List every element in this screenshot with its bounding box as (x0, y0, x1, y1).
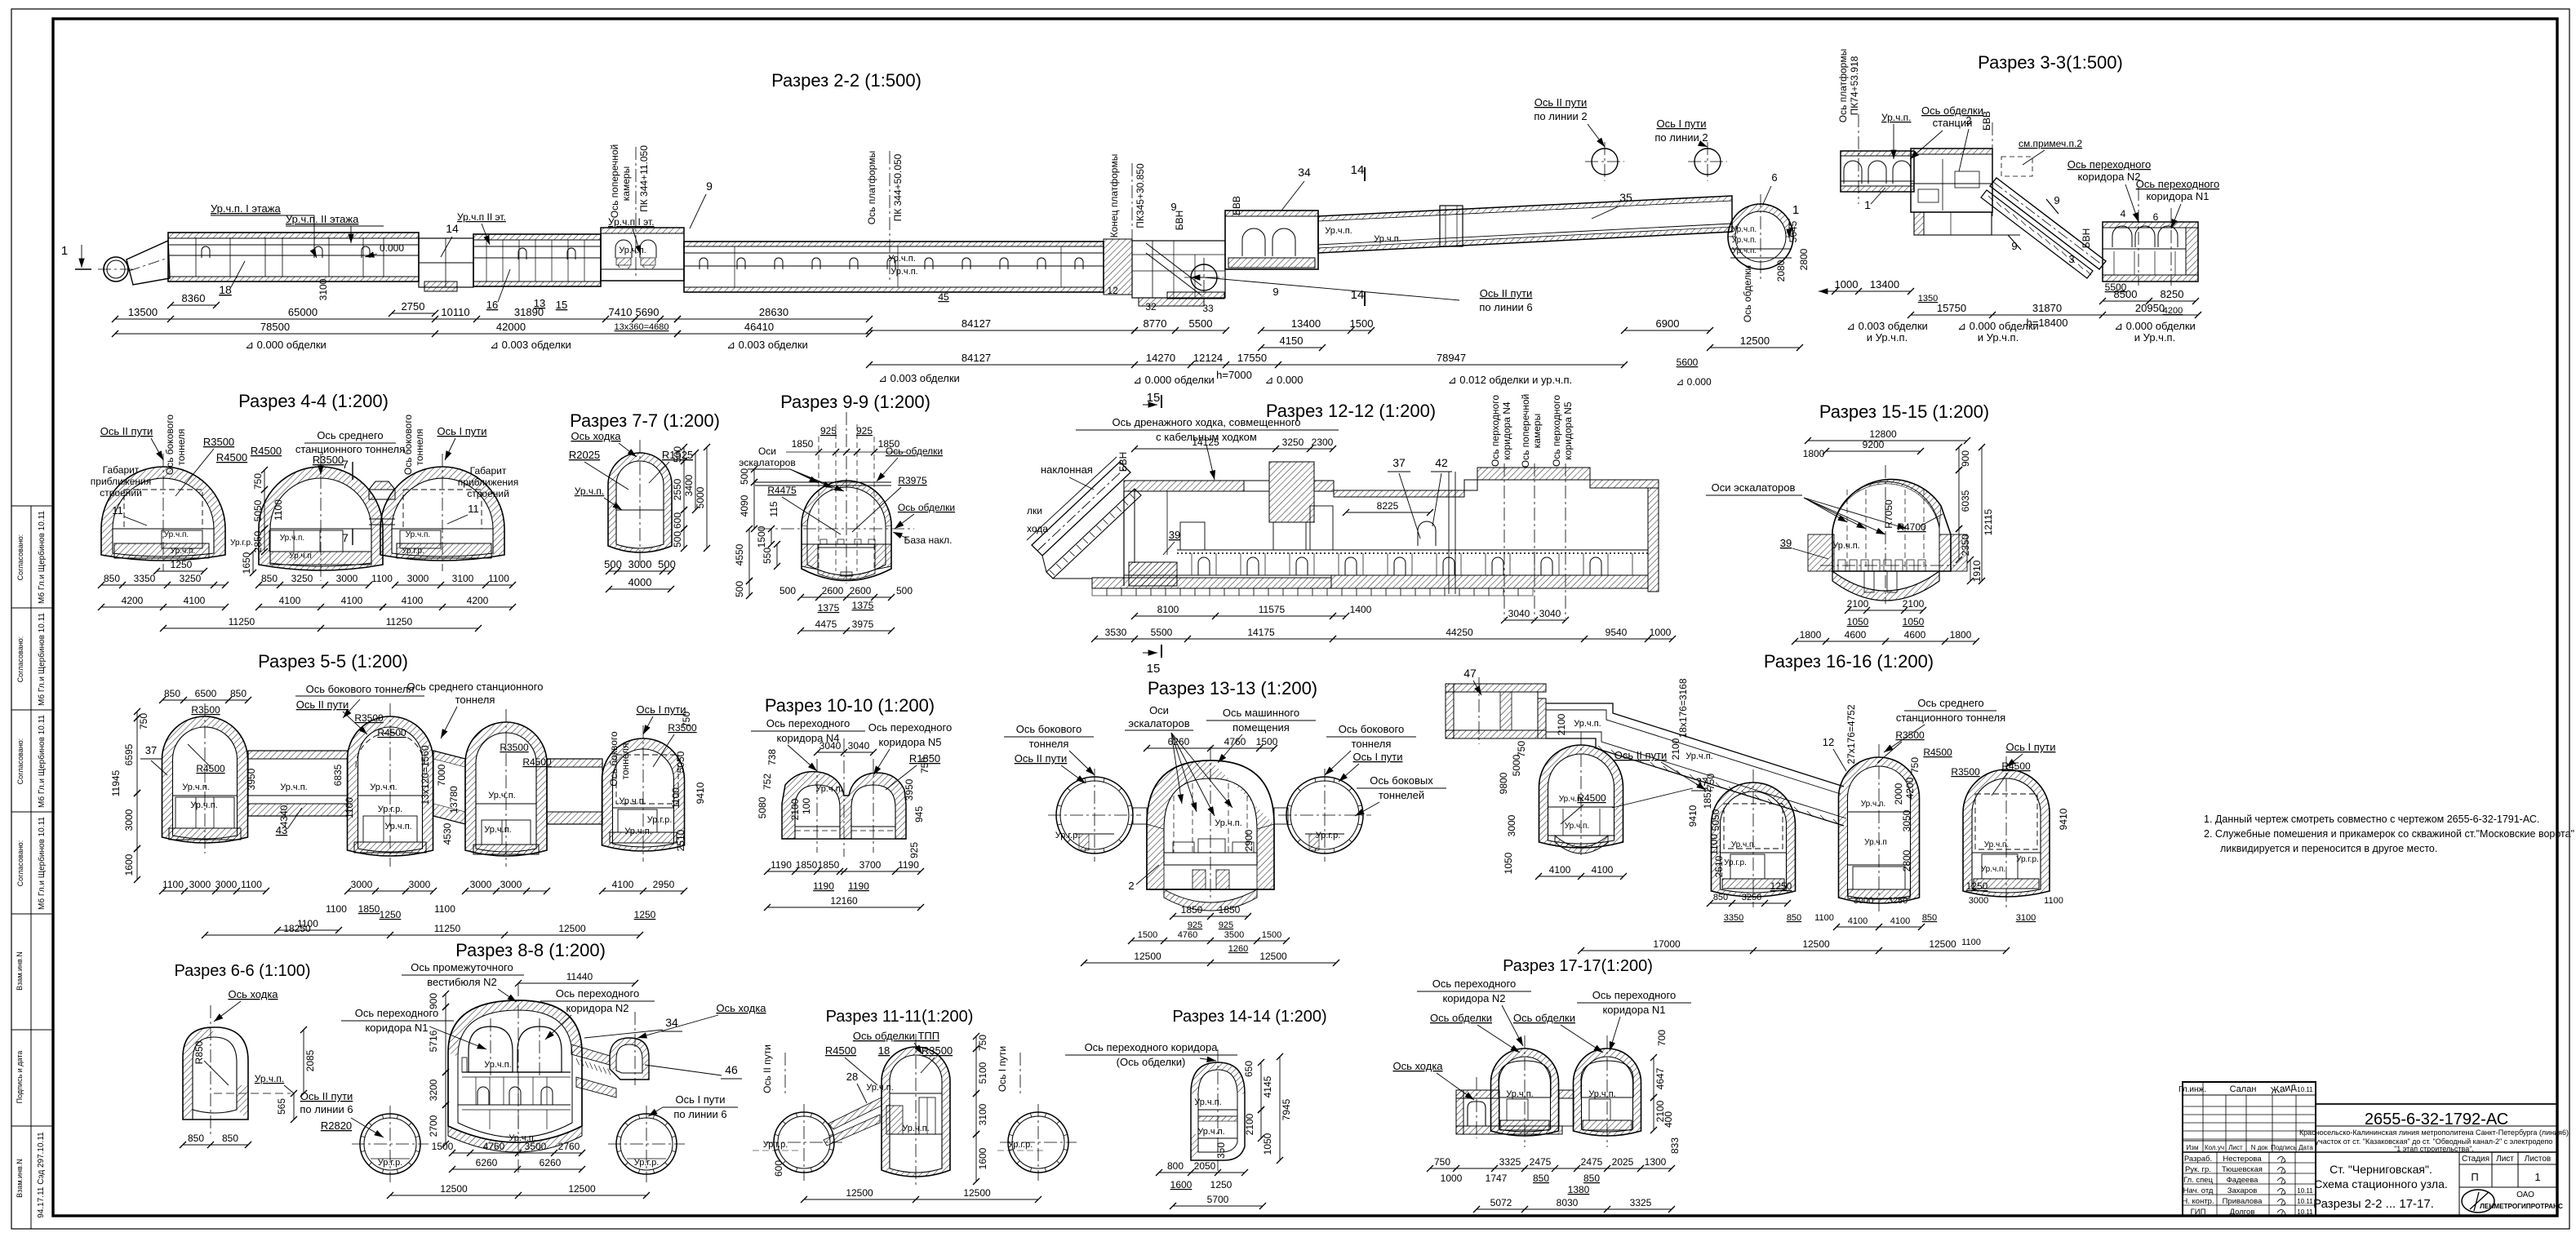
svg-text:11575: 11575 (1259, 604, 1286, 615)
svg-text:27x176=4752: 27x176=4752 (1845, 704, 1857, 764)
svg-text:камеры: камеры (1531, 414, 1543, 448)
svg-text:900: 900 (428, 993, 439, 1009)
svg-text:4600: 4600 (1904, 629, 1926, 641)
svg-text:Ур.г.р.: Ур.г.р. (647, 815, 673, 825)
svg-text:3: 3 (2068, 253, 2074, 265)
svg-text:Ур.ч.п.: Ур.ч.п. (190, 800, 217, 810)
svg-text:3040: 3040 (1508, 608, 1530, 619)
svg-text:925: 925 (908, 842, 920, 858)
svg-text:12500: 12500 (963, 1187, 991, 1199)
svg-text:1050: 1050 (1847, 616, 1869, 627)
svg-text:500: 500 (739, 468, 750, 485)
svg-text:3000: 3000 (1506, 814, 1517, 836)
svg-text:37: 37 (145, 744, 157, 756)
svg-text:Ур.ч.п.: Ур.ч.п. (624, 827, 651, 836)
svg-text:1800: 1800 (1950, 629, 1972, 641)
svg-text:3000: 3000 (1854, 896, 1873, 906)
svg-text:R4500: R4500 (196, 763, 225, 774)
svg-text:6595: 6595 (123, 743, 135, 765)
svg-text:17550: 17550 (1237, 352, 1267, 364)
svg-text:4760: 4760 (1178, 930, 1197, 940)
svg-text:2550: 2550 (672, 478, 683, 500)
svg-text:Ур.ч.п.: Ур.ч.п. (1861, 800, 1885, 809)
svg-text:2: 2 (1128, 880, 1134, 892)
svg-text:4200: 4200 (2163, 306, 2183, 316)
svg-text:18: 18 (219, 283, 232, 296)
svg-text:1500: 1500 (756, 525, 767, 548)
svg-text:1800: 1800 (1800, 629, 1822, 641)
svg-text:3530: 3530 (1105, 627, 1127, 638)
svg-text:12160: 12160 (830, 895, 858, 907)
svg-text:750: 750 (1434, 1156, 1450, 1168)
svg-text:6035: 6035 (1960, 490, 1971, 512)
svg-text:1910: 1910 (1971, 560, 1983, 582)
svg-text:коридора N2: коридора N2 (2077, 171, 2140, 183)
svg-text:600: 600 (773, 1160, 784, 1177)
svg-text:1850: 1850 (818, 859, 840, 871)
svg-text:1500: 1500 (1262, 930, 1281, 940)
svg-text:10110: 10110 (441, 306, 469, 318)
svg-text:35: 35 (1619, 191, 1632, 204)
svg-text:2300: 2300 (1312, 437, 1334, 448)
svg-text:1600: 1600 (977, 1147, 988, 1169)
svg-text:R3500: R3500 (1895, 729, 1925, 741)
svg-text:⊿ 0.000 обделки: ⊿ 0.000 обделки (245, 339, 326, 351)
svg-text:Ось переходного: Ось переходного (1432, 978, 1516, 990)
svg-text:ПК345+30.850: ПК345+30.850 (1135, 163, 1146, 228)
svg-text:Разрез 4-4 (1:200): Разрез 4-4 (1:200) (238, 391, 389, 411)
svg-text:Разрезы 2-2 ... 17-17.: Разрезы 2-2 ... 17-17. (2313, 1197, 2434, 1211)
svg-text:4100: 4100 (1592, 864, 1614, 876)
svg-text:11440: 11440 (566, 971, 593, 982)
svg-text:500: 500 (672, 531, 683, 548)
svg-text:Ось перходного: Ось перходного (1551, 395, 1562, 467)
svg-text:4000: 4000 (628, 576, 652, 588)
svg-text:17000: 17000 (1653, 938, 1681, 950)
svg-text:4100: 4100 (1549, 864, 1571, 876)
svg-text:3000: 3000 (189, 879, 211, 890)
svg-text:Ур.ч.п II эт.: Ур.ч.п II эт. (457, 211, 506, 223)
svg-text:Ось I пути: Ось I пути (997, 1046, 1008, 1092)
svg-text:3975: 3975 (852, 618, 874, 630)
svg-text:1000: 1000 (1441, 1173, 1463, 1184)
svg-text:4100: 4100 (1848, 916, 1868, 926)
svg-text:500: 500 (672, 446, 683, 463)
svg-text:4: 4 (2121, 208, 2126, 219)
svg-text:БВН: БВН (1174, 211, 1185, 231)
svg-text:Ур.ч.п.: Ур.ч.п. (619, 246, 646, 255)
svg-text:БВВ: БВВ (1981, 111, 1992, 131)
svg-text:R4500: R4500 (377, 727, 406, 738)
svg-text:8770: 8770 (1144, 317, 1167, 330)
svg-text:1250: 1250 (1210, 1179, 1232, 1190)
svg-text:5716: 5716 (428, 1030, 439, 1052)
svg-text:2000: 2000 (1893, 783, 1904, 805)
svg-text:12500: 12500 (846, 1187, 873, 1199)
svg-text:по линии 6: по линии 6 (673, 1108, 726, 1120)
svg-text:Мб Гл.и Щербинов 10.11: Мб Гл.и Щербинов 10.11 (37, 511, 47, 604)
svg-text:Ур.ч.п.: Ур.ч.п. (1731, 840, 1756, 849)
svg-text:Ур.г.р.: Ур.г.р. (634, 1158, 660, 1168)
svg-text:2085: 2085 (304, 1049, 316, 1071)
svg-text:6500: 6500 (195, 688, 217, 699)
svg-text:850: 850 (1787, 913, 1801, 923)
svg-text:Ось I пути: Ось I пути (2006, 741, 2056, 753)
svg-text:Привалова: Привалова (2223, 1197, 2263, 1206)
svg-text:Ур.ч.п.: Ур.ч.п. (1325, 226, 1352, 236)
svg-text:13x360=4680: 13x360=4680 (615, 322, 669, 332)
svg-text:10.11: 10.11 (2297, 1187, 2313, 1195)
svg-text:8360: 8360 (182, 292, 206, 304)
svg-text:4090: 4090 (739, 494, 750, 517)
svg-text:Ось переходного: Ось переходного (1592, 989, 1676, 1001)
svg-text:Лист: Лист (2228, 1144, 2243, 1151)
svg-text:Ось обделки: Ось обделки (898, 502, 955, 513)
svg-text:R4500: R4500 (251, 445, 282, 457)
svg-text:37: 37 (1392, 456, 1406, 469)
svg-text:Ур.ч.п.: Ур.ч.п. (1832, 541, 1859, 551)
svg-text:R3500: R3500 (313, 454, 344, 466)
svg-text:1100: 1100 (670, 787, 682, 809)
svg-text:Разрез 7-7 (1:200): Разрез 7-7 (1:200) (570, 410, 720, 431)
svg-text:47: 47 (1463, 667, 1477, 680)
svg-text:5072: 5072 (1490, 1197, 1512, 1208)
svg-text:тоннеля: тоннеля (414, 428, 425, 465)
svg-text:Ось II пути: Ось II пути (1015, 752, 1068, 765)
svg-text:Рук. гр.: Рук. гр. (2185, 1165, 2211, 1174)
svg-text:R4500: R4500 (2001, 760, 2031, 772)
svg-text:14175: 14175 (1247, 627, 1275, 638)
svg-text:станционного тоннеля: станционного тоннеля (1896, 712, 2005, 724)
svg-text:12500: 12500 (568, 1183, 596, 1195)
svg-text:Ур.ч.п.: Ур.ч.п. (1732, 225, 1757, 234)
svg-text:2100: 2100 (1670, 738, 1681, 760)
svg-text:850: 850 (104, 573, 120, 584)
svg-text:850: 850 (188, 1133, 204, 1144)
svg-text:600: 600 (672, 512, 683, 529)
svg-text:10.11: 10.11 (2297, 1208, 2313, 1216)
svg-text:Ось переходного: Ось переходного (868, 721, 952, 734)
svg-text:4760: 4760 (483, 1141, 505, 1152)
svg-text:Дата: Дата (2298, 1144, 2313, 1151)
svg-text:Ур.ч.п.: Ур.ч.п. (384, 822, 411, 831)
svg-text:78500: 78500 (260, 321, 290, 333)
svg-text:⊿ 0.003 обделки: ⊿ 0.003 обделки (726, 339, 808, 351)
svg-text:78947: 78947 (1437, 352, 1466, 364)
svg-text:Ось II пути: Ось II пути (300, 1090, 353, 1102)
svg-text:1100: 1100 (2044, 896, 2063, 906)
svg-text:5000: 5000 (695, 486, 706, 508)
svg-text:Ур.ч.п.: Ур.ч.п. (1559, 795, 1583, 804)
svg-text:7: 7 (342, 458, 349, 471)
svg-text:1190: 1190 (898, 859, 919, 871)
svg-text:Разрез 10-10 (1:200): Разрез 10-10 (1:200) (765, 695, 935, 716)
svg-text:Ось обделки ТПП: Ось обделки ТПП (853, 1030, 939, 1042)
svg-text:100: 100 (801, 798, 812, 814)
svg-text:750: 750 (977, 1035, 988, 1051)
svg-text:6260: 6260 (1168, 736, 1190, 747)
svg-text:1600: 1600 (123, 853, 135, 876)
svg-text:550: 550 (762, 548, 773, 564)
svg-text:1850: 1850 (1181, 904, 1203, 916)
svg-text:Ось I пути: Ось I пути (437, 425, 487, 437)
svg-text:Ось I пути: Ось I пути (676, 1093, 726, 1106)
svg-text:850: 850 (1533, 1173, 1549, 1184)
svg-text:2750: 2750 (402, 300, 425, 313)
svg-text:1100: 1100 (344, 797, 355, 818)
svg-text:9410: 9410 (1687, 805, 1699, 827)
svg-text:115: 115 (768, 501, 779, 517)
svg-text:5080: 5080 (757, 796, 768, 818)
svg-text:⊿ 0.000 обделки: ⊿ 0.000 обделки (1957, 320, 2039, 332)
svg-text:ГИП: ГИП (2191, 1208, 2206, 1217)
svg-text:2100: 2100 (1556, 713, 1567, 735)
svg-text:4475: 4475 (815, 618, 837, 630)
svg-text:Ось II пути: Ось II пути (1614, 749, 1668, 761)
svg-text:850: 850 (1922, 913, 1937, 923)
svg-text:65000: 65000 (288, 306, 318, 318)
svg-text:20950: 20950 (2135, 302, 2165, 314)
svg-text:тоннеля: тоннеля (620, 743, 631, 779)
svg-text:Ось перходного: Ось перходного (1490, 395, 1501, 467)
svg-text:9410: 9410 (695, 782, 706, 804)
svg-text:12500: 12500 (1259, 951, 1287, 962)
svg-text:738: 738 (766, 749, 778, 765)
svg-text:тоннеля: тоннеля (1029, 738, 1069, 750)
svg-text:1250: 1250 (634, 909, 656, 920)
svg-text:6835: 6835 (332, 764, 344, 786)
svg-text:9540: 9540 (1606, 627, 1628, 638)
svg-text:Ур.ч.п.: Ур.ч.п. (1686, 752, 1712, 761)
svg-text:Ур.ч.п: Ур.ч.п (1864, 838, 1887, 847)
svg-text:R3500: R3500 (191, 704, 220, 716)
svg-text:1250: 1250 (380, 909, 402, 920)
svg-text:Разрез 9-9 (1:200): Разрез 9-9 (1:200) (780, 392, 930, 412)
svg-text:1100: 1100 (326, 903, 347, 915)
svg-text:коридора N1: коридора N1 (1602, 1004, 1665, 1016)
svg-text:400: 400 (1663, 1111, 1674, 1128)
svg-text:3050: 3050 (1901, 809, 1912, 831)
svg-text:Ось платформы: Ось платформы (1837, 49, 1849, 122)
svg-text:1: 1 (61, 244, 68, 258)
svg-text:31890: 31890 (514, 306, 544, 318)
svg-text:2655-6-32-1792-АС: 2655-6-32-1792-АС (2365, 1111, 2508, 1128)
svg-text:ЛЕНМЕТРОГИПРОТРАНС: ЛЕНМЕТРОГИПРОТРАНС (2480, 1203, 2563, 1210)
svg-text:3500: 3500 (525, 1141, 547, 1152)
svg-text:Кол.уч: Кол.уч (2205, 1144, 2224, 1151)
svg-text:850: 850 (1583, 1173, 1600, 1184)
svg-text:Оси эскалаторов: Оси эскалаторов (1712, 481, 1796, 494)
svg-text:650: 650 (1243, 1061, 1255, 1077)
svg-text:Ось машинного: Ось машинного (1223, 707, 1299, 719)
svg-text:1250: 1250 (171, 559, 193, 570)
svg-text:7945: 7945 (1281, 1098, 1292, 1120)
svg-text:850: 850 (164, 688, 180, 699)
svg-text:2700: 2700 (428, 1115, 439, 1137)
svg-text:3040: 3040 (848, 740, 870, 752)
svg-text:11250: 11250 (229, 616, 255, 627)
svg-text:по линии 6: по линии 6 (300, 1103, 353, 1115)
svg-text:4647: 4647 (1654, 1067, 1666, 1089)
svg-text:эскалаторов: эскалаторов (1128, 717, 1189, 729)
svg-text:Ось среднего станционного: Ось среднего станционного (407, 681, 544, 693)
svg-text:28: 28 (846, 1071, 858, 1083)
svg-text:2100: 2100 (1903, 598, 1925, 610)
svg-text:500: 500 (734, 581, 745, 597)
svg-text:4550: 4550 (734, 543, 745, 565)
svg-text:3250: 3250 (1742, 893, 1761, 902)
svg-text:1500: 1500 (1350, 317, 1374, 330)
svg-text:2900: 2900 (1243, 829, 1255, 851)
svg-text:14125: 14125 (1192, 437, 1219, 448)
svg-text:32: 32 (1145, 301, 1157, 313)
svg-text:Салан: Салан (2230, 1084, 2257, 1094)
svg-text:10.11: 10.11 (2297, 1198, 2313, 1205)
svg-text:R2820: R2820 (321, 1120, 352, 1132)
svg-text:Габарит: Габарит (470, 465, 507, 477)
svg-text:3100: 3100 (2016, 913, 2036, 923)
svg-text:строений: строений (467, 488, 509, 499)
svg-text:15750: 15750 (1937, 302, 1966, 314)
svg-text:18x176=3168: 18x176=3168 (1677, 678, 1689, 738)
svg-text:1260: 1260 (1228, 944, 1248, 954)
svg-text:R850: R850 (193, 1040, 205, 1064)
svg-text:Ст. "Черниговская".: Ст. "Черниговская". (2330, 1163, 2432, 1176)
svg-text:12500: 12500 (1929, 938, 1956, 950)
svg-text:наклонная: наклонная (1041, 463, 1093, 476)
svg-text:Ур.ч.п I эт.: Ур.ч.п I эт. (608, 216, 655, 228)
svg-text:12500: 12500 (1740, 335, 1770, 347)
svg-text:8500: 8500 (2114, 288, 2138, 300)
svg-text:15: 15 (1147, 662, 1161, 676)
svg-text:Ось бокового тоннеля: Ось бокового тоннеля (306, 683, 415, 695)
svg-text:приближения: приближения (458, 477, 518, 488)
svg-text:Ось II пути: Ось II пути (100, 425, 153, 437)
svg-text:по линии 2: по линии 2 (1534, 110, 1587, 122)
svg-text:3100: 3100 (977, 1103, 988, 1125)
svg-text:12: 12 (1107, 285, 1118, 296)
svg-text:и Ур.ч.п.: и Ур.ч.п. (1867, 331, 1908, 344)
svg-text:1375: 1375 (852, 600, 874, 611)
svg-text:Разрез 14-14 (1:200): Разрез 14-14 (1:200) (1172, 1008, 1326, 1026)
svg-text:Разрез 16-16 (1:200): Разрез 16-16 (1:200) (1764, 651, 1934, 672)
svg-text:ПК 344+11.050: ПК 344+11.050 (638, 145, 650, 212)
svg-text:3325: 3325 (1499, 1156, 1521, 1168)
svg-text:Ур.г.р.: Ур.г.р. (1055, 831, 1081, 840)
svg-text:Согласовано:: Согласовано: (16, 840, 24, 887)
svg-text:1: 1 (1864, 198, 1871, 211)
svg-text:3250: 3250 (291, 573, 313, 584)
svg-text:14: 14 (446, 222, 459, 235)
svg-text:и Ур.ч.п.: и Ур.ч.п. (2134, 331, 2175, 344)
svg-text:Ур.ч.п.: Ур.ч.п. (1732, 236, 1757, 245)
svg-text:Ур.ч.п.: Ур.ч.п. (182, 783, 209, 792)
svg-text:Ось II пути: Ось II пути (762, 1044, 773, 1093)
svg-text:752: 752 (762, 774, 773, 790)
svg-text:13x120=1560: 13x120=1560 (420, 745, 431, 805)
svg-text:Ось переходного коридора: Ось переходного коридора (1085, 1041, 1219, 1053)
svg-text:Ось промежуточного: Ось промежуточного (411, 961, 513, 973)
svg-text:ОАО: ОАО (2516, 1190, 2534, 1199)
svg-text:4200: 4200 (467, 595, 489, 606)
svg-text:5050: 5050 (252, 499, 264, 521)
svg-text:850: 850 (222, 1133, 238, 1144)
svg-text:Мб Гл.и Щербинов 10.11: Мб Гл.и Щербинов 10.11 (37, 613, 47, 706)
svg-text:750: 750 (252, 473, 264, 490)
svg-text:Ось обделки: Ось обделки (1513, 1012, 1575, 1024)
svg-text:Ур.ч.п.: Ур.ч.п. (1984, 840, 2009, 849)
svg-text:1. Данный чертеж смотреть сов: 1. Данный чертеж смотреть совместно с че… (2204, 814, 2539, 825)
svg-text:18250: 18250 (283, 923, 311, 934)
svg-text:6260: 6260 (476, 1157, 498, 1168)
svg-text:Ось ходка: Ось ходка (571, 430, 621, 442)
svg-text:1300: 1300 (1645, 1156, 1667, 1168)
svg-text:База накл.: База накл. (904, 534, 953, 546)
svg-text:Ур.ч.п.: Ур.ч.п. (484, 825, 511, 835)
svg-text:Ур.ч.п.: Ур.ч.п. (171, 547, 195, 556)
svg-text:2025: 2025 (1612, 1156, 1634, 1168)
svg-text:8030: 8030 (1557, 1197, 1579, 1208)
svg-text:R3500: R3500 (203, 436, 234, 448)
svg-text:3200: 3200 (428, 1079, 439, 1101)
svg-text:Гл. спец: Гл. спец (2183, 1176, 2214, 1185)
svg-text:850: 850 (1713, 893, 1728, 902)
svg-text:12124: 12124 (1193, 352, 1223, 364)
svg-text:39: 39 (1780, 537, 1792, 549)
svg-text:Ур.ч.п.: Ур.ч.п. (164, 530, 189, 539)
svg-text:12: 12 (1823, 736, 1834, 748)
svg-text:эскалаторов: эскалаторов (739, 457, 795, 468)
svg-text:1850: 1850 (358, 903, 380, 915)
svg-text:Ур.ч.п.: Ур.ч.п. (866, 1083, 893, 1093)
svg-text:4200: 4200 (122, 595, 144, 606)
svg-text:Согласовано:: Согласовано: (16, 636, 24, 683)
svg-text:12800: 12800 (1869, 428, 1897, 440)
svg-text:2475: 2475 (1530, 1156, 1552, 1168)
svg-text:Долгов: Долгов (2230, 1208, 2255, 1217)
svg-text:6: 6 (2153, 211, 2159, 223)
svg-text:1500: 1500 (1256, 736, 1278, 747)
svg-text:1747: 1747 (1486, 1173, 1508, 1184)
svg-text:Ур.г.р.: Ур.г.р. (763, 1140, 788, 1150)
svg-text:42: 42 (1435, 456, 1448, 469)
svg-text:см.примеч.п.2: см.примеч.п.2 (2019, 138, 2082, 149)
svg-text:84127: 84127 (962, 317, 991, 330)
svg-text:2600: 2600 (822, 585, 844, 596)
svg-text:1: 1 (2534, 1171, 2540, 1183)
svg-text:Ур.г.р.: Ур.г.р. (402, 547, 424, 556)
svg-text:Фадеева: Фадеева (2227, 1176, 2259, 1185)
svg-text:тоннелей: тоннелей (1379, 789, 1424, 801)
svg-text:1190: 1190 (771, 859, 792, 871)
svg-text:7000: 7000 (436, 764, 447, 786)
svg-text:⊿ 0.003 обделки: ⊿ 0.003 обделки (1846, 320, 1928, 332)
svg-text:2510: 2510 (675, 829, 686, 851)
svg-text:11: 11 (112, 504, 123, 517)
svg-text:Ур.г.р.: Ур.г.р. (2016, 855, 2039, 864)
svg-text:Ось обделки: Ось обделки (886, 446, 943, 457)
svg-text:1000: 1000 (1835, 278, 1859, 290)
svg-text:Ур.ч.п.: Ур.ч.п. (484, 1060, 511, 1070)
svg-text:5500: 5500 (1151, 627, 1173, 638)
svg-text:1800: 1800 (1803, 448, 1825, 459)
svg-text:Ось среднего: Ось среднего (317, 429, 383, 441)
svg-text:14: 14 (1351, 288, 1365, 302)
svg-text:2080: 2080 (1775, 259, 1787, 282)
svg-text:Ось I пути: Ось I пути (637, 703, 686, 716)
svg-text:8225: 8225 (1377, 500, 1399, 512)
svg-text:ПК 344+50.050: ПК 344+50.050 (892, 153, 904, 221)
